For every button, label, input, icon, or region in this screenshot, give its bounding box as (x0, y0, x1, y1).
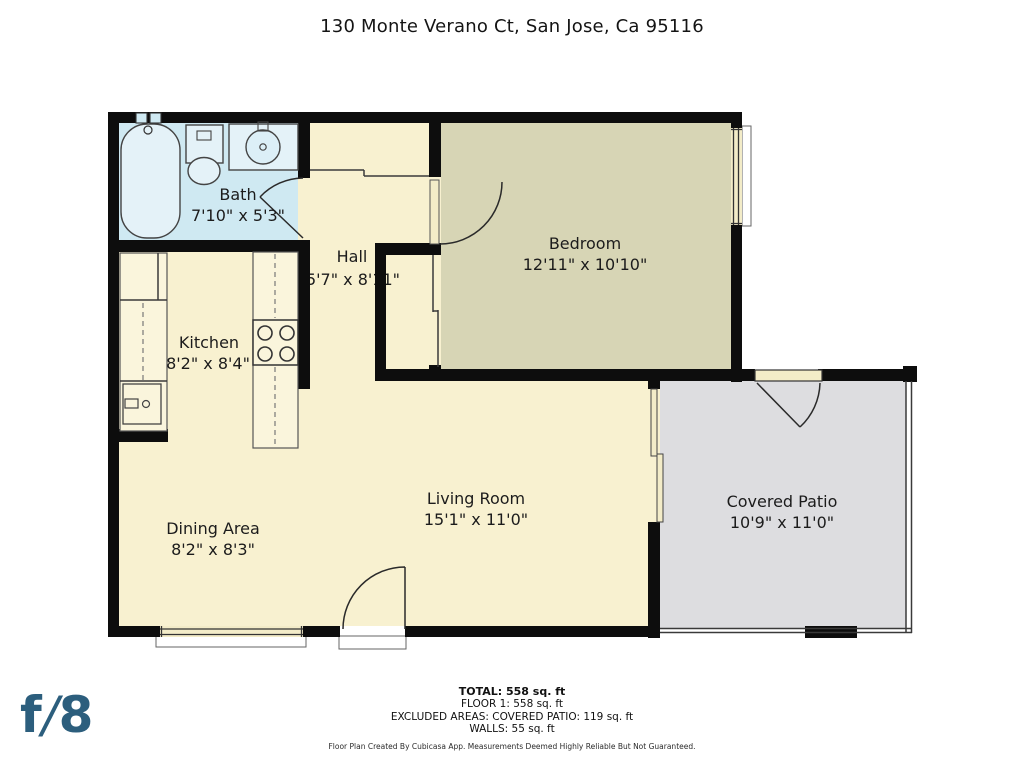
dining-window (160, 626, 303, 637)
summary-floor1: FLOOR 1: 558 sq. ft (0, 698, 1024, 710)
patio-label: Covered Patio (727, 492, 838, 511)
living-label: Living Room (427, 489, 525, 508)
logo-eight: 8 (59, 686, 93, 744)
f8-logo: f/8 (20, 686, 92, 744)
bath-label: Bath (219, 185, 256, 204)
stove (253, 320, 298, 365)
bath-dims: 7'10" x 5'3" (191, 206, 285, 225)
dining-label: Dining Area (166, 519, 260, 538)
dining-dims: 8'2" x 8'3" (171, 540, 255, 559)
kitchen-dims: 8'2" x 8'4" (166, 354, 250, 373)
bedroom-dims: 12'11" x 10'10" (523, 255, 648, 274)
bedroom-label: Bedroom (549, 234, 621, 253)
area-summary: TOTAL: 558 sq. ft FLOOR 1: 558 sq. ft EX… (0, 686, 1024, 735)
patio-right-edge (906, 381, 912, 633)
logo-f: f (20, 686, 41, 744)
entry-door-threshold (339, 636, 406, 649)
kitchen-label: Kitchen (179, 333, 239, 352)
disclaimer-text: Floor Plan Created By Cubicasa App. Meas… (0, 742, 1024, 751)
bathroom-sink (229, 122, 298, 170)
floor-plan-drawing: Hall 5'7" x 8'11" (0, 0, 1024, 768)
patio-dims: 10'9" x 11'0" (730, 513, 834, 532)
patio-bottom-edge (660, 629, 912, 633)
living-dims: 15'1" x 11'0" (424, 510, 528, 529)
toilet (186, 125, 223, 185)
summary-excluded: EXCLUDED AREAS: COVERED PATIO: 119 sq. f… (0, 711, 1024, 723)
patio-slider-panel-2 (657, 454, 663, 522)
logo-slash: / (41, 686, 59, 744)
dining-window-sill (156, 636, 306, 647)
patio-slider-panel-1 (651, 389, 657, 456)
floor-plan-page: 130 Monte Verano Ct, San Jose, Ca 95116 … (0, 0, 1024, 768)
bedroom-window (731, 128, 742, 225)
summary-total: TOTAL: 558 sq. ft (0, 686, 1024, 698)
bathtub (121, 124, 180, 238)
bedroom-window-sill (742, 126, 751, 226)
summary-walls: WALLS: 55 sq. ft (0, 723, 1024, 735)
patio-door-opening (755, 370, 822, 381)
hall-label: Hall (337, 247, 368, 266)
